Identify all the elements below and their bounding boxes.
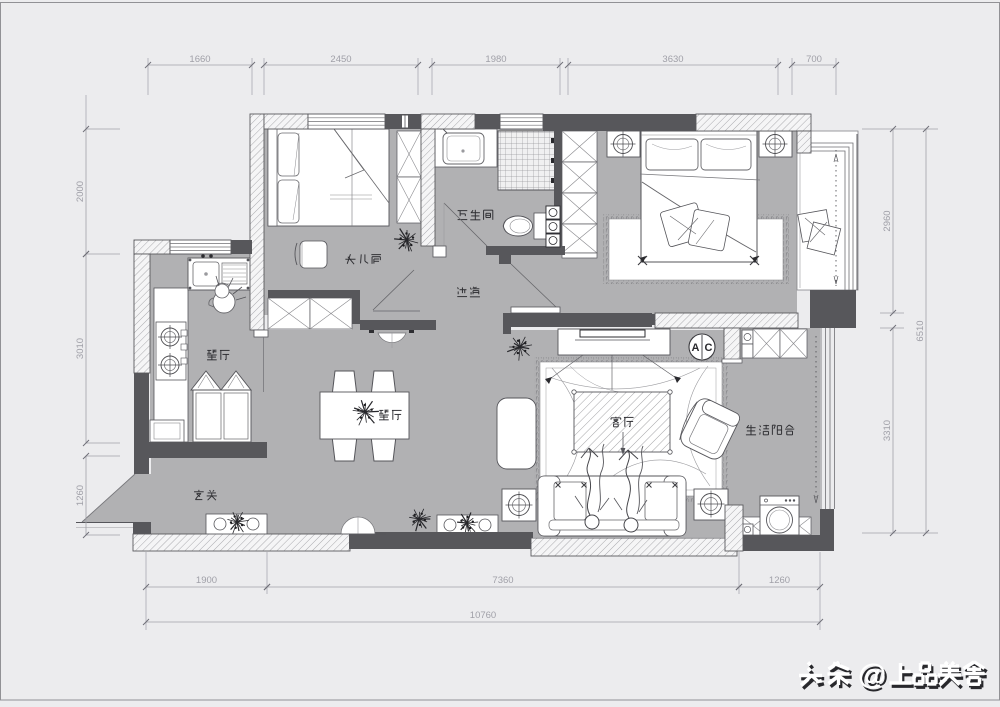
svg-text:1660: 1660 xyxy=(189,54,210,65)
svg-text:1260: 1260 xyxy=(769,575,790,586)
svg-text:C: C xyxy=(705,342,713,354)
svg-text:2000: 2000 xyxy=(75,181,86,202)
svg-text:3010: 3010 xyxy=(75,338,86,359)
svg-text:7360: 7360 xyxy=(492,575,513,586)
svg-text:3630: 3630 xyxy=(662,54,683,65)
svg-text:1980: 1980 xyxy=(485,54,506,65)
svg-text:@: @ xyxy=(858,659,886,691)
svg-text:3310: 3310 xyxy=(882,420,893,441)
svg-text:6510: 6510 xyxy=(915,320,926,341)
svg-text:1260: 1260 xyxy=(75,485,86,506)
svg-text:10760: 10760 xyxy=(470,610,496,621)
svg-text:A: A xyxy=(692,342,700,354)
svg-text:2960: 2960 xyxy=(882,210,893,231)
svg-text:700: 700 xyxy=(806,54,822,65)
svg-text:2450: 2450 xyxy=(330,54,351,65)
svg-text:1900: 1900 xyxy=(196,575,217,586)
